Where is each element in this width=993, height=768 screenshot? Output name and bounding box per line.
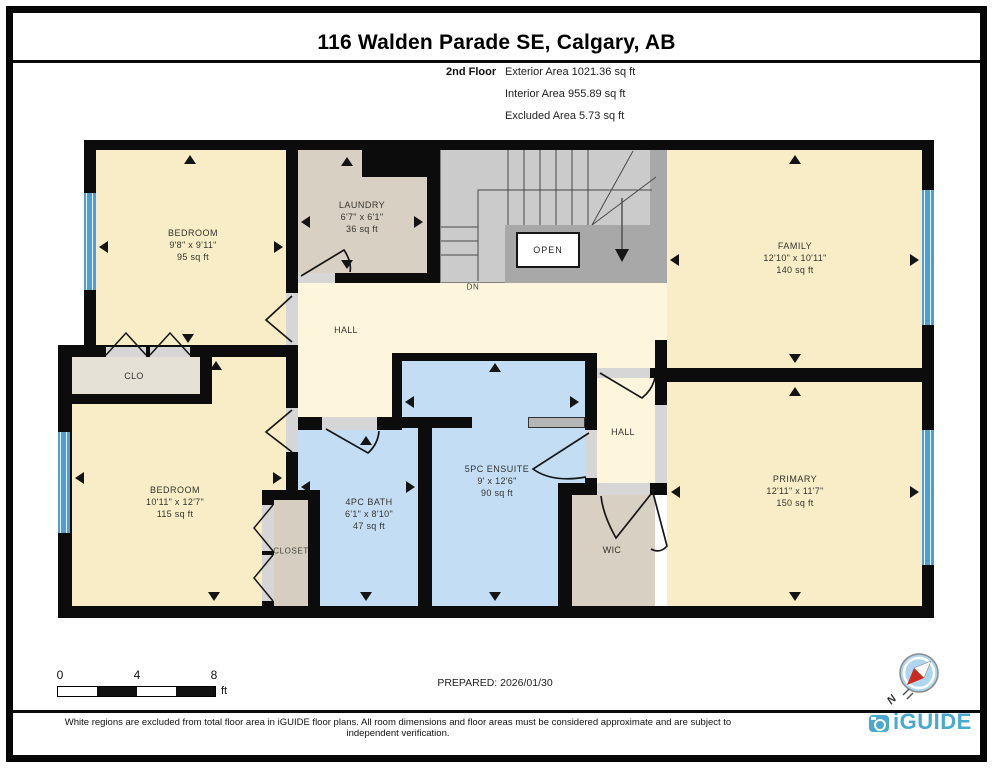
room-label-bedroom-2: BEDROOM 10'11" x 12'7" 115 sq ft — [146, 484, 204, 520]
room-label-ensuite: 5PC ENSUITE 9' x 12'6" 90 sq ft — [465, 463, 530, 499]
page-title: 116 Walden Parade SE, Calgary, AB — [0, 31, 993, 55]
room-label-primary: PRIMARY 12'11" x 11'7" 150 sq ft — [766, 473, 823, 509]
excluded-area-stat: Excluded Area 5.73 sq ft — [505, 110, 624, 122]
footer-disclaimer: White regions are excluded from total fl… — [40, 717, 756, 739]
room-hall-main — [298, 283, 402, 417]
room-label-hall-lower: HALL — [611, 426, 635, 438]
door-opening — [655, 405, 667, 483]
floor-plan-page: 116 Walden Parade SE, Calgary, AB 2nd Fl… — [0, 0, 993, 768]
title-divider — [13, 60, 980, 63]
stair-open-label: OPEN — [516, 232, 580, 268]
door-opening — [597, 368, 650, 378]
stairs-dn-label: DN — [467, 283, 480, 294]
room-hall-corridor — [402, 283, 597, 353]
iguide-logo-icon — [869, 715, 889, 732]
door-opening — [286, 408, 298, 452]
closet-door-opening — [150, 347, 190, 357]
wall — [362, 148, 427, 177]
wall — [335, 273, 440, 283]
wall — [58, 606, 934, 618]
wall — [655, 368, 934, 382]
scale-unit-label: ft — [221, 685, 227, 697]
wall — [418, 428, 432, 618]
room-label-closet: CLOSET — [273, 547, 309, 558]
wall — [58, 394, 212, 404]
wall — [402, 417, 472, 428]
scale-tick-8: 8 — [211, 668, 218, 682]
scale-tick-0: 0 — [57, 668, 64, 682]
window — [58, 432, 70, 533]
door-opening — [298, 273, 335, 283]
closet-door-opening — [262, 505, 274, 551]
door-opening — [585, 430, 597, 478]
exterior-area-stat: Exterior Area 1021.36 sq ft — [505, 66, 635, 78]
prepared-date-label: PREPARED: 2026/01/30 — [375, 677, 615, 689]
room-label-laundry: LAUNDRY 6'7" x 6'1" 36 sq ft — [339, 199, 385, 235]
room-label-bedroom-1: BEDROOM 9'8" x 9'11" 95 sq ft — [168, 227, 218, 263]
closet-door-opening — [262, 555, 274, 601]
floor-label: 2nd Floor — [446, 66, 496, 78]
wall — [392, 353, 597, 361]
scale-tick-4: 4 — [134, 668, 141, 682]
footer-divider — [13, 710, 980, 713]
door-opening — [597, 483, 650, 495]
wall — [308, 490, 320, 618]
interior-area-stat: Interior Area 955.89 sq ft — [505, 88, 625, 100]
closet-door-opening — [106, 347, 146, 357]
wall — [427, 148, 440, 283]
room-label-hall-upper: HALL — [334, 324, 358, 336]
room-label-bath: 4PC BATH 6'1" x 8'10" 47 sq ft — [345, 496, 393, 532]
door-opening — [322, 417, 377, 430]
room-label-family: FAMILY 12'10" x 10'11" 140 sq ft — [763, 240, 826, 276]
wall — [655, 340, 667, 368]
window — [922, 430, 934, 565]
wall — [84, 140, 934, 150]
wall — [200, 345, 212, 404]
door-opening — [286, 293, 298, 345]
room-label-clo: CLO — [124, 370, 143, 382]
wall — [377, 417, 392, 430]
window — [84, 193, 96, 290]
iguide-logo-text: iGUIDE — [893, 709, 972, 735]
vanity-counter — [528, 417, 585, 428]
wall — [392, 353, 402, 430]
room-label-wic: WIC — [603, 544, 621, 556]
wall — [558, 483, 572, 618]
scale-bar — [57, 686, 216, 697]
window — [922, 190, 934, 325]
